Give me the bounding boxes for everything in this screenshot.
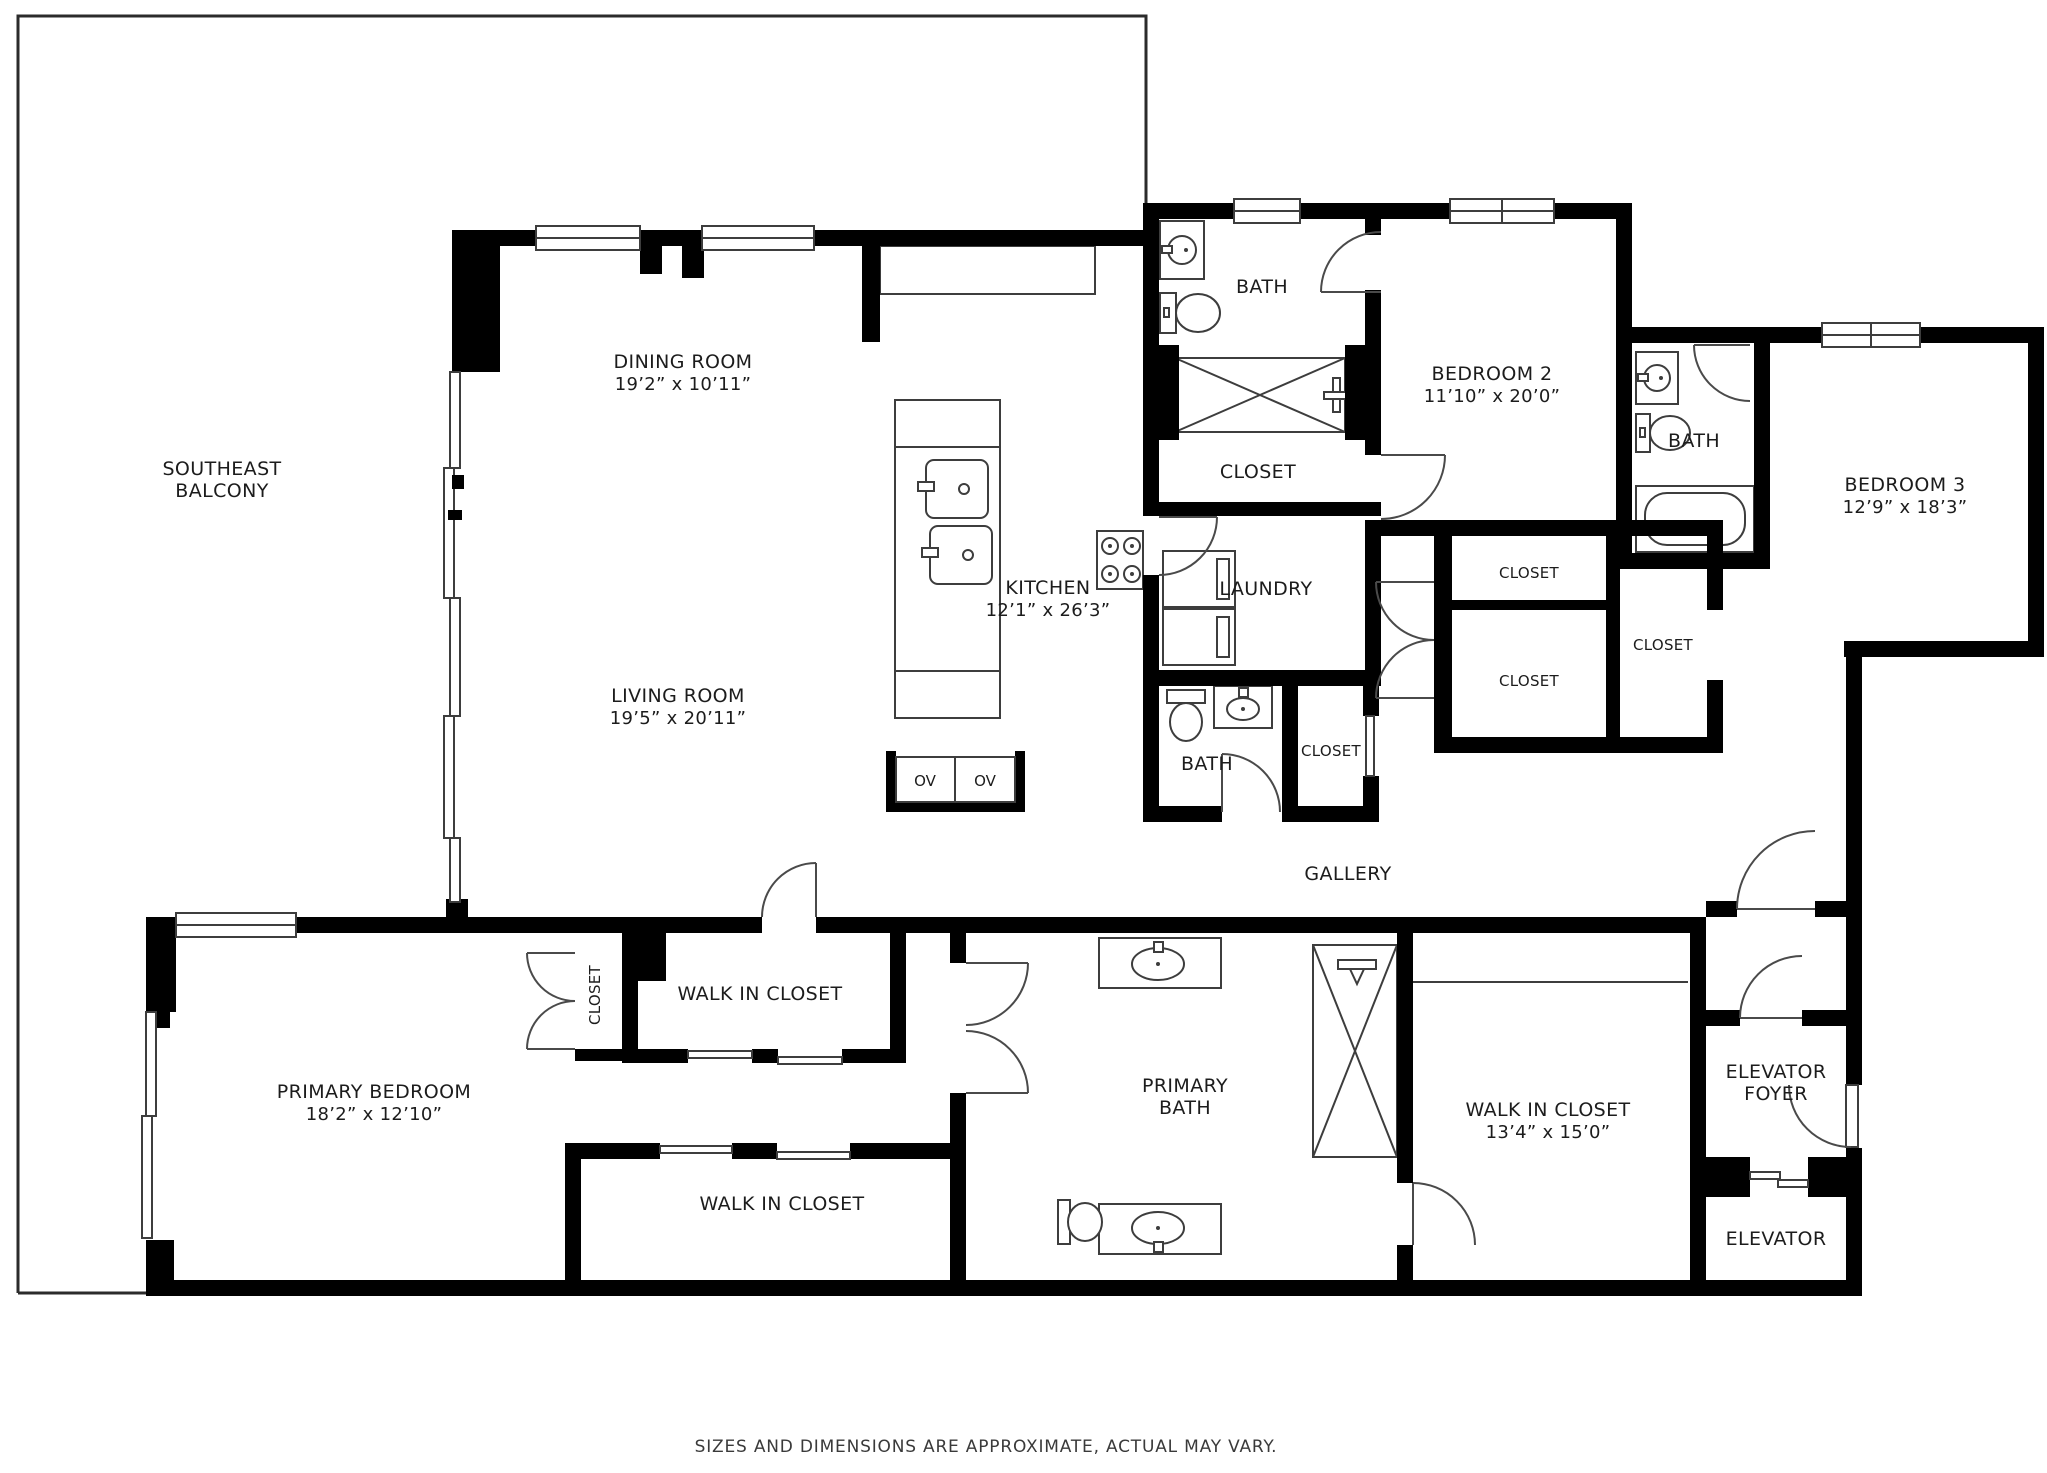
double-door-arc xyxy=(966,963,1028,1093)
closet-bedroom2b-label: CLOSET xyxy=(1499,672,1560,690)
kitchen-island xyxy=(895,400,1000,718)
oven-left-label: OV xyxy=(914,772,937,790)
sink-icon xyxy=(1214,686,1272,728)
toilet-icon xyxy=(1160,293,1220,333)
closet-hall-label: CLOSET xyxy=(1301,742,1362,760)
vanity-sink-icon xyxy=(1099,938,1221,988)
window-icon xyxy=(1822,323,1920,347)
gallery-label: GALLERY xyxy=(1304,863,1391,885)
oven-right-label: OV xyxy=(974,772,997,790)
dining-room-dims: 19’2” x 10’11” xyxy=(615,374,752,395)
closet-bedroom2a-label: CLOSET xyxy=(1499,564,1560,582)
window-icon xyxy=(536,226,640,250)
window-icon xyxy=(1450,199,1554,223)
wic-main-dims: 13’4” x 15’0” xyxy=(1486,1122,1611,1143)
sink-icon xyxy=(1160,221,1204,279)
floor-plan-drawing: SOUTHEAST BALCONY DINING ROOM 19’2” x 10… xyxy=(0,0,2047,1473)
window-wall xyxy=(444,372,464,902)
wic-lower-label: WALK IN CLOSET xyxy=(699,1193,864,1215)
door-arc xyxy=(1740,956,1802,1018)
wic-main-label: WALK IN CLOSET xyxy=(1465,1099,1630,1121)
double-door-arc xyxy=(527,953,575,1049)
bedroom2-label: BEDROOM 2 xyxy=(1432,363,1553,385)
primary-bath-label-2: BATH xyxy=(1159,1097,1211,1119)
bath-bedroom3-label: BATH xyxy=(1668,430,1720,452)
toilet-icon xyxy=(1058,1200,1102,1244)
window-wall xyxy=(142,1012,156,1238)
door-arc xyxy=(1321,232,1381,292)
kitchen-label: KITCHEN xyxy=(1005,577,1090,599)
shower-icon xyxy=(1175,358,1348,432)
double-door-arc xyxy=(1376,582,1434,698)
bathtub-icon xyxy=(1636,486,1754,552)
elevator-foyer-label: ELEVATOR xyxy=(1726,1061,1827,1083)
kitchen-counter xyxy=(880,246,1095,294)
disclaimer-text: SIZES AND DIMENSIONS ARE APPROXIMATE, AC… xyxy=(695,1437,1278,1457)
balcony-label-2: BALCONY xyxy=(175,480,268,502)
laundry-label: LAUNDRY xyxy=(1219,578,1312,600)
dining-room-label: DINING ROOM xyxy=(614,351,753,373)
floor-plan-page: SOUTHEAST BALCONY DINING ROOM 19’2” x 10… xyxy=(0,0,2047,1473)
door-leaf xyxy=(1366,716,1374,776)
living-room-dims: 19’5” x 20’11” xyxy=(610,708,747,729)
bath-hall-label: BATH xyxy=(1181,753,1233,775)
primary-bedroom-label: PRIMARY BEDROOM xyxy=(277,1081,471,1103)
bath-top-label: BATH xyxy=(1236,276,1288,298)
double-oven-icon xyxy=(886,751,1025,812)
toilet-icon xyxy=(1167,690,1205,741)
shower-icon xyxy=(1313,945,1397,1157)
walls xyxy=(146,203,2044,1296)
door-arc xyxy=(1737,831,1815,909)
closet-primary-label: CLOSET xyxy=(586,964,604,1025)
sliding-door-icon xyxy=(660,1051,850,1159)
door-arc xyxy=(1694,345,1750,401)
window-icon xyxy=(1234,199,1300,223)
bedroom2-dims: 11’10” x 20’0” xyxy=(1424,386,1561,407)
door-arc xyxy=(762,863,816,917)
balcony-label: SOUTHEAST xyxy=(162,458,281,480)
door-arc xyxy=(1413,1183,1475,1245)
window-icon xyxy=(176,913,296,937)
window-icon xyxy=(702,226,814,250)
bedroom3-label: BEDROOM 3 xyxy=(1845,474,1966,496)
vanity-sink-icon xyxy=(1099,1204,1221,1254)
kitchen-dims: 12’1” x 26’3” xyxy=(986,600,1111,621)
sink-icon xyxy=(1636,352,1678,404)
living-room-label: LIVING ROOM xyxy=(611,685,745,707)
closet-bedroom3-label: CLOSET xyxy=(1633,636,1694,654)
washer-dryer-icon xyxy=(1163,551,1235,665)
elevator-foyer-label-2: FOYER xyxy=(1744,1083,1808,1105)
island-sink-icon xyxy=(918,460,988,518)
primary-bedroom-dims: 18’2” x 12’10” xyxy=(306,1104,443,1125)
primary-bath-label: PRIMARY xyxy=(1142,1075,1228,1097)
wic-upper-label: WALK IN CLOSET xyxy=(677,983,842,1005)
island-sink-icon-2 xyxy=(922,526,992,584)
closet-top-label: CLOSET xyxy=(1220,461,1296,483)
elevator-label: ELEVATOR xyxy=(1726,1228,1827,1250)
stove-icon xyxy=(1097,531,1143,589)
door-arc xyxy=(1381,455,1445,519)
bedroom3-dims: 12’9” x 18’3” xyxy=(1843,497,1968,518)
elevator-door-icon xyxy=(1750,1172,1808,1187)
